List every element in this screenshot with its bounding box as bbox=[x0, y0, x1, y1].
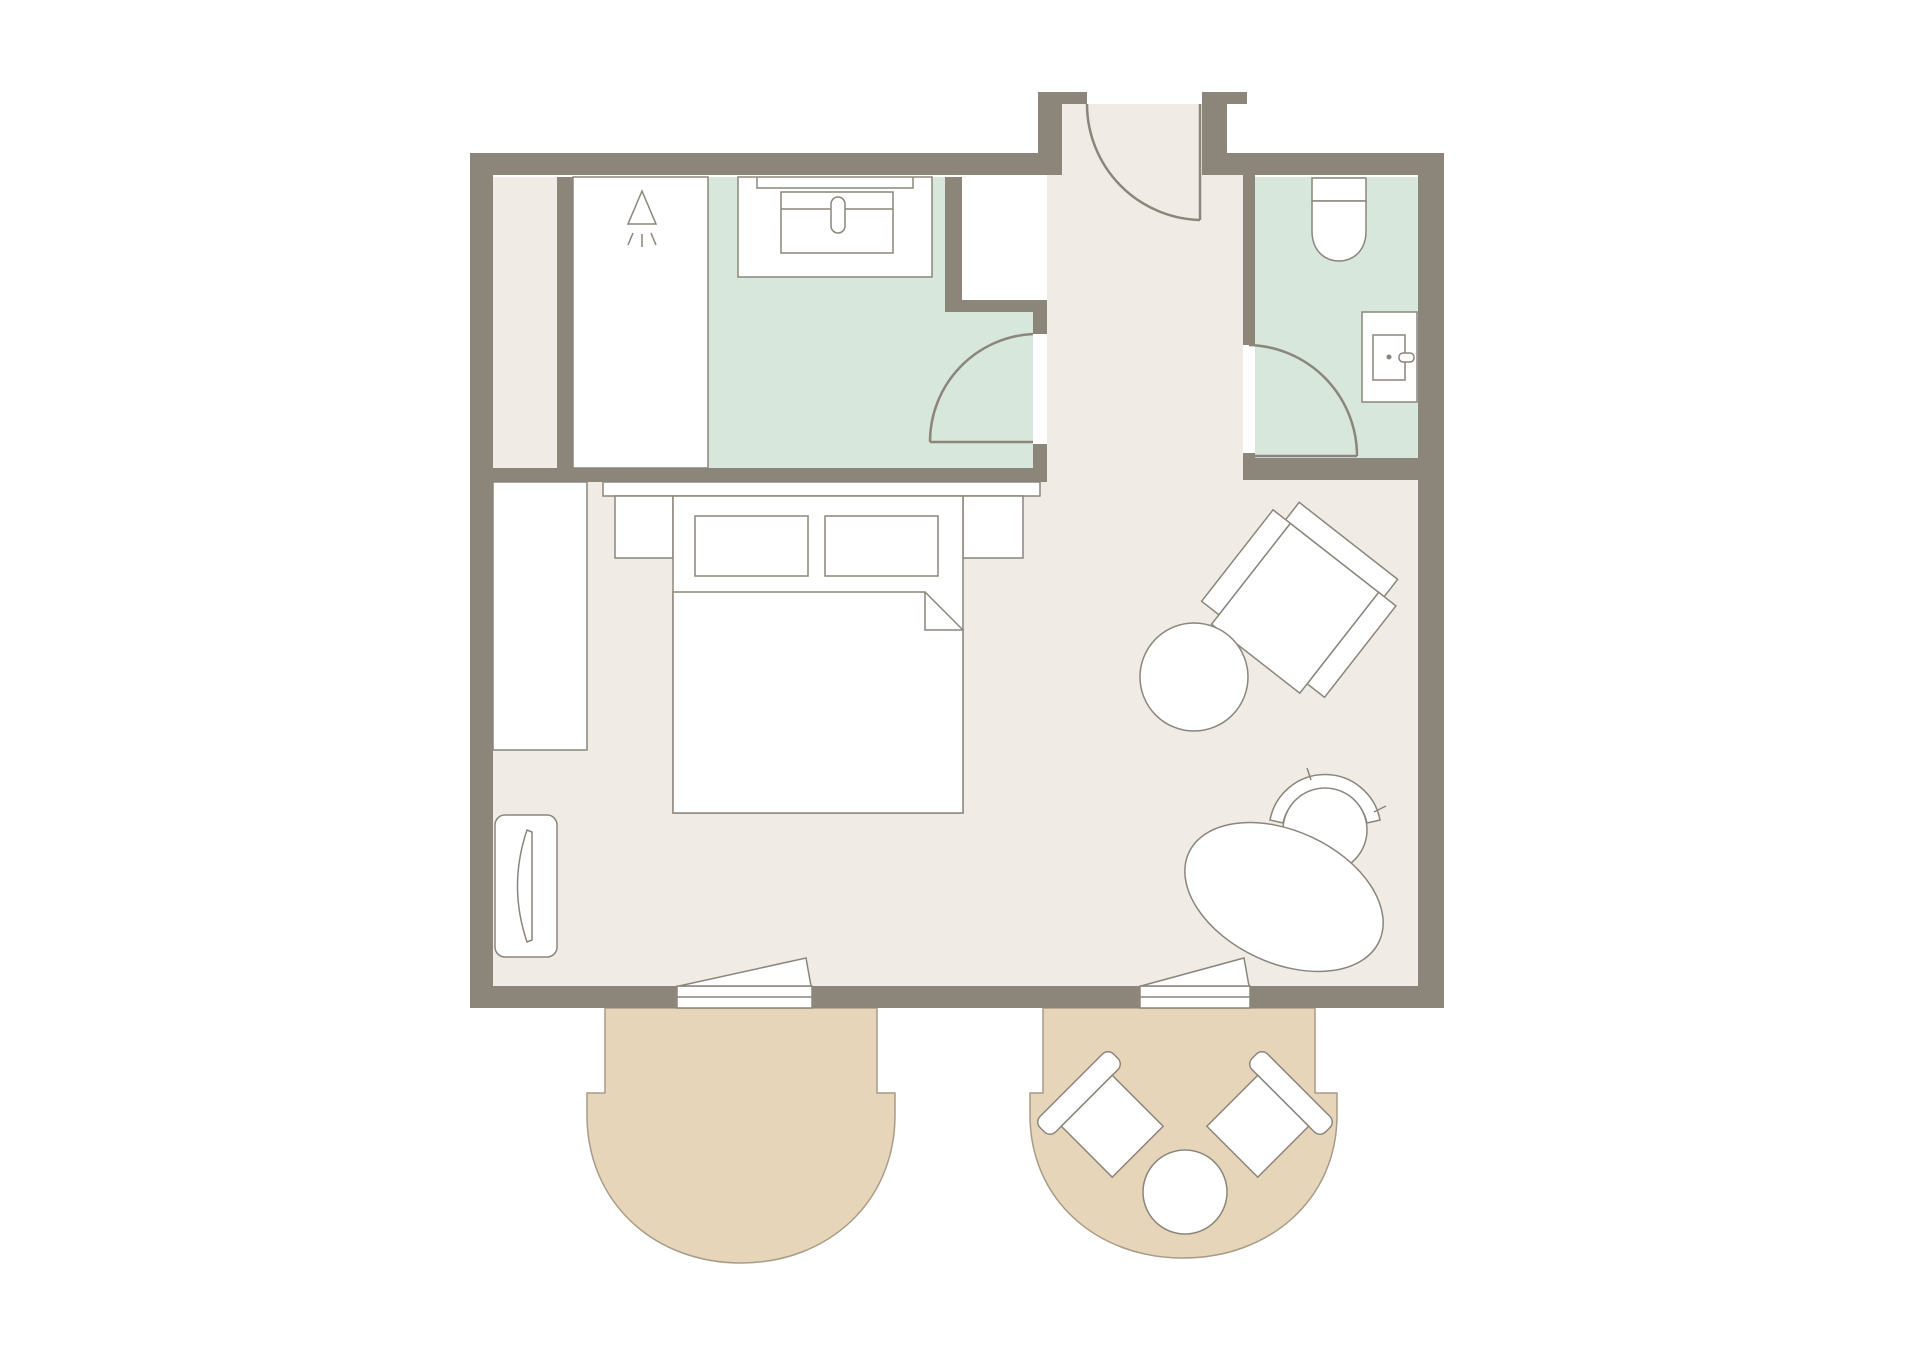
luggage-rack bbox=[495, 815, 557, 957]
nightstand-right bbox=[963, 496, 1023, 558]
niche-shower-divider-wall bbox=[557, 177, 573, 468]
toilet-bowl bbox=[1312, 201, 1366, 261]
bathroom-wall-bottom bbox=[1243, 458, 1418, 480]
outer-wall-top-left-segment bbox=[470, 153, 1038, 175]
outer-wall-top-right-segment bbox=[1227, 153, 1442, 175]
vestibule-wall-right bbox=[1202, 92, 1227, 175]
floor-plan-drawing bbox=[0, 0, 1920, 1348]
floor-plan-page bbox=[0, 0, 1920, 1348]
vestibule-wall-left bbox=[1038, 92, 1062, 175]
balcony-right bbox=[1030, 1008, 1337, 1258]
balcony-left bbox=[587, 1008, 895, 1263]
hallway-wall-lower-jamb bbox=[1033, 444, 1047, 482]
entry-vestibule-floor bbox=[1062, 104, 1202, 179]
luggage-rack-body bbox=[495, 815, 557, 957]
outdoor-round-table bbox=[1143, 1150, 1227, 1234]
toilet-tank bbox=[1312, 178, 1366, 201]
hallway-wall-upper-jamb bbox=[1033, 312, 1047, 334]
nightstand-left bbox=[615, 496, 673, 558]
toilet bbox=[1312, 178, 1366, 261]
shower-stall bbox=[573, 177, 708, 468]
duvet bbox=[673, 592, 963, 813]
closet-nook-wall-left bbox=[945, 177, 962, 312]
round-side-table bbox=[1140, 623, 1248, 731]
vestibule-lintel-right bbox=[1202, 92, 1247, 104]
bathroom-wall-left-upper bbox=[1243, 175, 1255, 345]
storage-niche-floor bbox=[493, 177, 557, 468]
vanity-washbasin bbox=[738, 177, 932, 277]
sideboard bbox=[493, 482, 587, 750]
outer-wall-bottom bbox=[470, 986, 1442, 1008]
washbasin-faucet bbox=[1399, 353, 1414, 362]
balcony-left-floor bbox=[587, 1008, 895, 1263]
vanity-faucet bbox=[831, 197, 845, 233]
closet-nook-wall-bottom bbox=[945, 300, 1047, 312]
closet-nook bbox=[962, 177, 1033, 300]
hallway-floor bbox=[1047, 175, 1243, 484]
vestibule-lintel-left bbox=[1038, 92, 1087, 104]
outer-wall-left bbox=[470, 153, 493, 1008]
bedroom-divider-wall bbox=[493, 468, 1047, 482]
pillow-left bbox=[695, 516, 808, 576]
washbasin-drain bbox=[1387, 355, 1392, 360]
washbasin bbox=[1362, 312, 1417, 402]
outer-wall-right bbox=[1418, 153, 1444, 1008]
pillow-right bbox=[825, 516, 938, 576]
headboard bbox=[603, 482, 1040, 496]
